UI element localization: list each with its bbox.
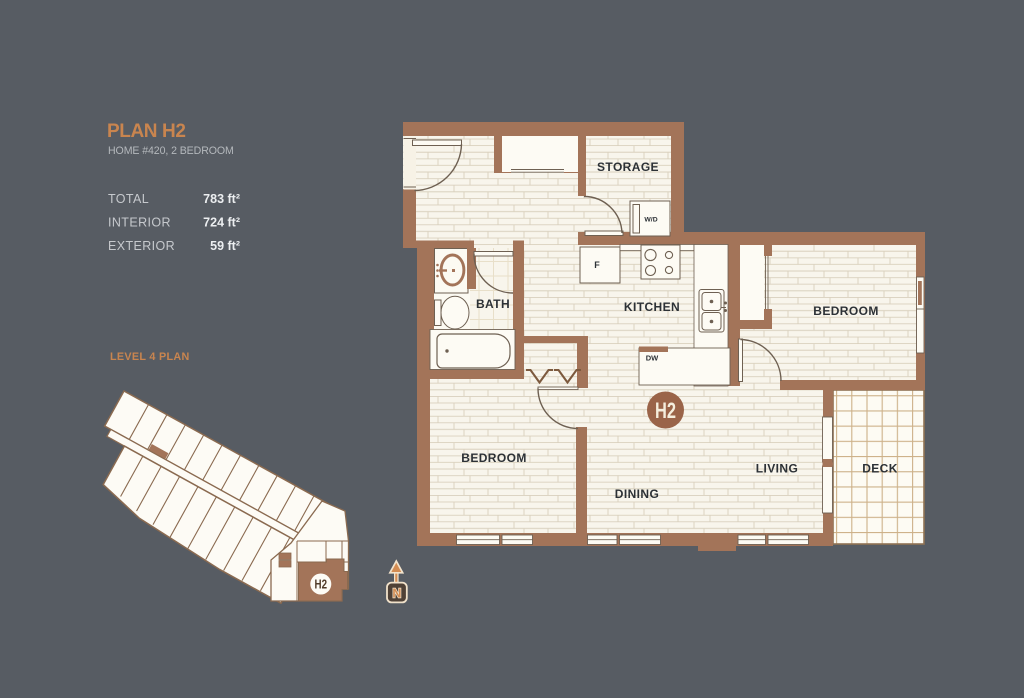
svg-text:DECK: DECK bbox=[862, 462, 898, 476]
svg-text:W/D: W/D bbox=[644, 217, 657, 224]
svg-text:BEDROOM: BEDROOM bbox=[813, 304, 878, 318]
svg-text:DW: DW bbox=[646, 354, 659, 363]
svg-text:H2: H2 bbox=[655, 398, 676, 423]
svg-text:STORAGE: STORAGE bbox=[597, 160, 659, 174]
svg-text:F: F bbox=[594, 260, 600, 270]
svg-text:PLAN H2: PLAN H2 bbox=[107, 121, 186, 142]
svg-text:EXTERIOR: EXTERIOR bbox=[108, 239, 175, 253]
svg-text:LIVING: LIVING bbox=[756, 462, 798, 476]
svg-text:H2: H2 bbox=[315, 578, 328, 592]
svg-text:DINING: DINING bbox=[615, 487, 659, 501]
svg-text:BATH: BATH bbox=[476, 297, 510, 311]
svg-text:783 ft²: 783 ft² bbox=[203, 192, 240, 206]
svg-text:59 ft²: 59 ft² bbox=[210, 239, 240, 253]
svg-text:INTERIOR: INTERIOR bbox=[108, 216, 171, 230]
svg-text:TOTAL: TOTAL bbox=[108, 192, 149, 206]
svg-text:N: N bbox=[392, 587, 401, 601]
svg-text:KITCHEN: KITCHEN bbox=[624, 300, 680, 314]
svg-text:BEDROOM: BEDROOM bbox=[461, 451, 526, 465]
svg-text:HOME #420, 2 BEDROOM: HOME #420, 2 BEDROOM bbox=[108, 145, 234, 157]
svg-text:LEVEL 4 PLAN: LEVEL 4 PLAN bbox=[110, 351, 190, 363]
svg-text:724 ft²: 724 ft² bbox=[203, 216, 240, 230]
